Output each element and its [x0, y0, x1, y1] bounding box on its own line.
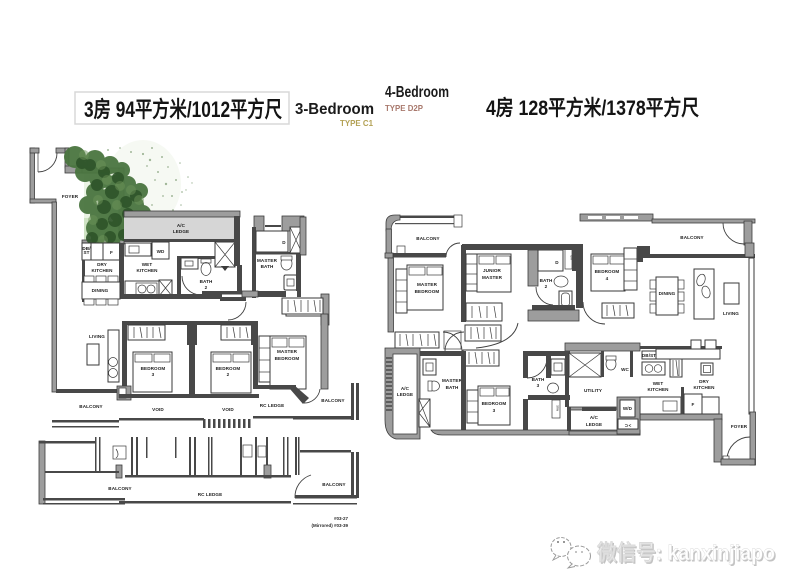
svg-text:RC LEDGE: RC LEDGE — [260, 403, 285, 408]
svg-text:WET: WET — [142, 262, 153, 267]
svg-text:A/C: A/C — [401, 386, 410, 391]
svg-text:2: 2 — [545, 284, 548, 289]
svg-text:BEDROOM: BEDROOM — [216, 366, 241, 371]
svg-text:BATH: BATH — [200, 279, 213, 284]
svg-text:DRY: DRY — [97, 262, 107, 267]
svg-text:FOYER: FOYER — [731, 424, 748, 429]
svg-text:BATH: BATH — [261, 264, 274, 269]
svg-text:KITCHEN: KITCHEN — [693, 385, 715, 390]
svg-text:UTILITY: UTILITY — [584, 388, 602, 393]
svg-text:DINING: DINING — [659, 291, 676, 296]
svg-text:BEDROOM: BEDROOM — [141, 366, 166, 371]
svg-text:LEDGE: LEDGE — [397, 392, 413, 397]
svg-text:WC: WC — [621, 367, 629, 372]
svg-text:MASTER: MASTER — [277, 349, 298, 354]
svg-text:DRY: DRY — [699, 379, 709, 384]
svg-text:3: 3 — [537, 383, 540, 388]
svg-text:KITCHEN: KITCHEN — [91, 268, 113, 273]
svg-text:BALCONY: BALCONY — [108, 486, 131, 491]
svg-text:F: F — [692, 402, 695, 407]
svg-text:WD: WD — [157, 249, 165, 254]
svg-text:D: D — [555, 260, 559, 265]
svg-text:TYPE C1: TYPE C1 — [340, 118, 373, 128]
svg-text:BEDROOM: BEDROOM — [415, 289, 440, 294]
svg-text:M&E: M&E — [556, 405, 560, 411]
svg-text:LEDGE: LEDGE — [586, 422, 602, 427]
svg-text:D: D — [282, 240, 286, 245]
svg-text:3: 3 — [152, 372, 155, 377]
svg-text:BATH: BATH — [446, 385, 459, 390]
svg-text:MASTER: MASTER — [257, 258, 278, 263]
svg-text:#03-27: #03-27 — [334, 516, 349, 521]
svg-text:A/C: A/C — [177, 223, 186, 228]
svg-text:BEDROOM: BEDROOM — [275, 356, 300, 361]
svg-text:3房 94平方米/1012平方尺: 3房 94平方米/1012平方尺 — [84, 97, 282, 122]
svg-text:BALCONY: BALCONY — [321, 398, 344, 403]
svg-text:4房 128平方米/1378平方尺: 4房 128平方米/1378平方尺 — [486, 96, 699, 120]
svg-text:BALCONY: BALCONY — [416, 236, 439, 241]
svg-text:KITCHEN: KITCHEN — [647, 387, 669, 392]
svg-text:MASTER: MASTER — [417, 282, 438, 287]
svg-text:A/C: A/C — [590, 415, 599, 420]
svg-text:VOID: VOID — [222, 407, 234, 412]
svg-text:ST: ST — [83, 250, 89, 255]
svg-text:BALCONY: BALCONY — [79, 404, 102, 409]
svg-text:JUNIOR: JUNIOR — [483, 268, 502, 273]
svg-text:4-Bedroom: 4-Bedroom — [385, 84, 449, 101]
svg-text:F: F — [110, 250, 113, 255]
svg-text:4: 4 — [606, 276, 609, 281]
svg-text:3: 3 — [493, 408, 496, 413]
svg-text:LIVING: LIVING — [723, 311, 739, 316]
svg-text:TYPE D2P: TYPE D2P — [385, 103, 423, 113]
svg-text:W/D: W/D — [623, 406, 633, 411]
svg-text:BEDROOM: BEDROOM — [482, 401, 507, 406]
svg-text:DB/ST: DB/ST — [642, 353, 656, 358]
svg-text:BALCONY: BALCONY — [322, 482, 345, 487]
svg-text:LEDGE: LEDGE — [173, 229, 189, 234]
svg-text:BALCONY: BALCONY — [680, 235, 703, 240]
svg-text:2: 2 — [205, 285, 208, 290]
svg-text:⊃<: ⊃< — [625, 423, 632, 428]
svg-text:LIVING: LIVING — [89, 334, 105, 339]
svg-text:RC LEDGE: RC LEDGE — [198, 492, 223, 497]
svg-text:BATH: BATH — [532, 377, 545, 382]
svg-text:WET: WET — [653, 381, 664, 386]
svg-text:MASTER: MASTER — [442, 378, 463, 383]
svg-text:FOYER: FOYER — [62, 194, 79, 199]
svg-text:DINING: DINING — [92, 288, 109, 293]
svg-text:BEDROOM: BEDROOM — [595, 269, 620, 274]
svg-text:VOID: VOID — [152, 407, 164, 412]
svg-text:2: 2 — [227, 372, 230, 377]
svg-text:MASTER: MASTER — [482, 275, 503, 280]
svg-text:微信号: kanxinjiapo: 微信号: kanxinjiapo — [596, 540, 775, 565]
svg-text:KITCHEN: KITCHEN — [136, 268, 158, 273]
svg-text:(Mirrored) #03-39: (Mirrored) #03-39 — [311, 523, 348, 528]
svg-text:3-Bedroom: 3-Bedroom — [295, 101, 374, 118]
svg-text:BATH: BATH — [540, 278, 553, 283]
